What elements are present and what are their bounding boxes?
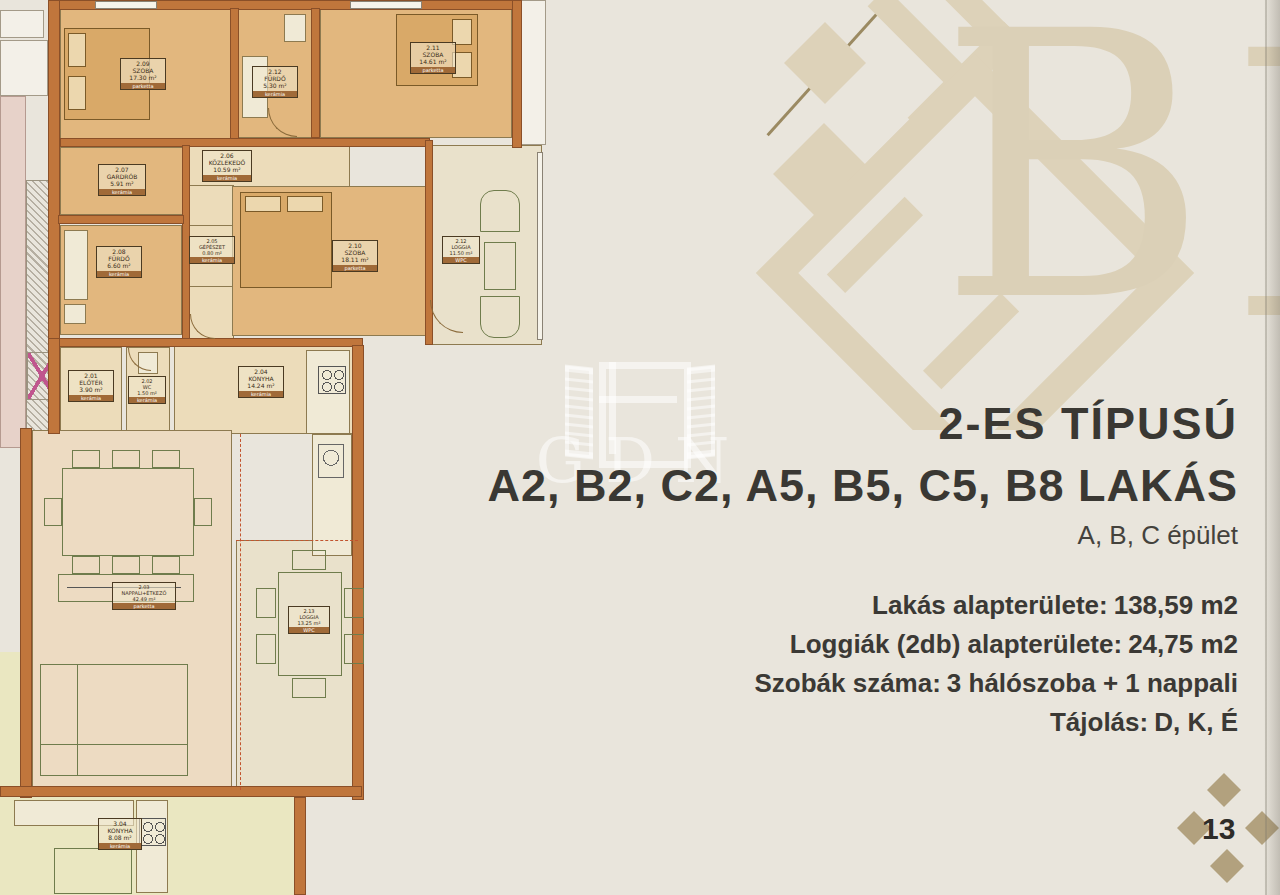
room-name: KONYHA: [101, 827, 139, 834]
chair-icon: [292, 550, 326, 570]
detail-label: Szobák száma:: [754, 668, 940, 698]
room-label-szoba-1: 2.09SZOBA17.30 m²parketta: [120, 58, 166, 90]
loggia-table-icon: [484, 242, 516, 290]
chair-icon: [112, 556, 140, 574]
wall-segment: [352, 345, 364, 800]
pillow-icon: [245, 196, 281, 212]
detail-value: 3 hálószoba + 1 nappali: [947, 668, 1238, 698]
neighbor-room: [0, 40, 48, 96]
room-floor: parketta: [113, 603, 175, 609]
wall-segment: [311, 8, 320, 138]
wall-segment: [58, 215, 184, 224]
bathtub-icon: [64, 230, 88, 300]
room-name: ELŐTÉR: [71, 379, 111, 386]
neighbor-strip: [0, 96, 26, 448]
detail-value: D, K, É: [1154, 707, 1238, 737]
sink-icon: [284, 14, 306, 42]
chair-icon: [344, 588, 364, 618]
pillow-icon: [287, 196, 323, 212]
stove-icon: [139, 818, 166, 846]
room-label-gardrob: 2.07GARDRÓB5.91 m²kerámia: [98, 164, 146, 196]
room-floor: kerámia: [129, 397, 165, 403]
room-floor: kerámia: [203, 175, 251, 181]
room-area: 42.49 m²: [115, 596, 173, 602]
room-name: KONYHA: [241, 375, 281, 382]
room-label-loggia-right: 2.12LOGGIA11.50 m²WPC: [442, 236, 480, 264]
chair-icon: [152, 450, 180, 468]
dining-table-icon: [62, 468, 194, 556]
room-floor: kerámia: [239, 391, 283, 397]
sofa-cushion-line: [41, 744, 187, 745]
floor-plan: 2.09SZOBA17.30 m²parketta 2.12FÜRDŐ5.30 …: [0, 0, 560, 895]
chair-icon: [256, 588, 276, 618]
room-area: 14.24 m²: [241, 382, 281, 389]
room-name: SZOBA: [123, 67, 163, 74]
brochure-page: B B GDN 2-ES TÍPUSÚ A2, B2, C2, A5, B5, …: [0, 0, 1280, 895]
room-floor: kerámia: [99, 843, 141, 849]
pillow-icon: [68, 33, 86, 67]
chair-icon: [292, 678, 326, 698]
chair-icon: [256, 634, 276, 664]
room-floor: parketta: [333, 265, 377, 271]
wall-segment: [230, 8, 239, 140]
room-number: 2.06: [205, 152, 249, 159]
diamond-icon: [1210, 849, 1244, 883]
room-label-eloter: 2.01ELŐTÉR3.90 m²kerámia: [68, 370, 114, 402]
room-label-neighbor-konyha: 3.04KONYHA8.08 m²kerámia: [98, 818, 142, 850]
wall-segment: [48, 0, 60, 352]
room-area: 14.61 m²: [413, 58, 453, 65]
wall-segment: [48, 338, 363, 347]
room-floor: kerámia: [190, 257, 234, 263]
detail-line-area: Lakás alapterülete:138,59 m2: [754, 586, 1238, 625]
letter-b-watermark: B B: [700, 0, 1280, 430]
pillow-icon: [68, 76, 86, 110]
room-area: 5.91 m²: [101, 180, 143, 187]
room-label-gepeszet: 2.05GÉPÉSZET0.80 m²kerámia: [189, 236, 235, 264]
chair-icon: [72, 450, 100, 468]
room-number: 2.01: [71, 372, 111, 379]
chair-icon: [44, 498, 62, 526]
watermark-letter: B: [938, 6, 1208, 330]
wall-segment: [512, 0, 522, 148]
stove-icon: [318, 366, 346, 394]
room-name: FÜRDŐ: [99, 255, 139, 262]
room-area: 13.25 m²: [291, 620, 327, 626]
room-number: 2.04: [241, 368, 281, 375]
room-area: 10.59 m²: [205, 166, 249, 173]
wall-segment: [48, 338, 60, 434]
room-label-szoba-2: 2.11SZOBA14.61 m²parketta: [410, 42, 456, 74]
room-area: 3.90 m²: [71, 386, 111, 393]
apartment-details: Lakás alapterülete:138,59 m2 Loggiák (2d…: [754, 586, 1238, 742]
room-area: 6.60 m²: [99, 262, 139, 269]
room-label-konyha: 2.04KONYHA14.24 m²kerámia: [238, 366, 284, 398]
room-number: 2.08: [99, 248, 139, 255]
room-area: 1.50 m²: [131, 390, 163, 396]
toilet-icon: [64, 304, 86, 324]
room-area: 5.30 m²: [255, 82, 295, 89]
room-area: 18.11 m²: [335, 256, 375, 263]
window-strip: [518, 0, 546, 145]
room-label-kozlekedo: 2.06KÖZLEKEDŐ10.59 m²kerámia: [202, 150, 252, 182]
room-label-wc: 2.02WC1.50 m²kerámia: [128, 376, 166, 404]
room-name: SZOBA: [335, 249, 375, 256]
neighbor-room: [0, 10, 44, 38]
chair-icon: [152, 556, 180, 574]
wall-segment: [60, 138, 430, 147]
section-dash-line: [236, 540, 358, 541]
room-floor: WPC: [289, 627, 329, 633]
room-number: 2.11: [413, 44, 453, 51]
chair-icon: [194, 498, 212, 526]
page-edge-shadow: [1264, 0, 1280, 895]
room-name: SZOBA: [413, 51, 453, 58]
room-floor: parketta: [121, 83, 165, 89]
wall-segment: [425, 140, 433, 345]
room-name: KÖZLEKEDŐ: [205, 159, 249, 166]
detail-label: Tájolás:: [1050, 707, 1148, 737]
chair-icon: [112, 450, 140, 468]
loggia-chair-icon: [480, 190, 520, 232]
wall-segment: [20, 428, 32, 798]
room-floor: kerámia: [253, 91, 297, 97]
room-floor: WPC: [443, 257, 479, 263]
loggia-chair-icon: [480, 296, 520, 338]
room-area: 17.30 m²: [123, 74, 163, 81]
room-label-furdo-top: 2.12FÜRDŐ5.30 m²kerámia: [252, 66, 298, 98]
chair-icon: [72, 556, 100, 574]
room-number: 2.12: [255, 68, 295, 75]
wall-segment: [0, 786, 362, 797]
building-subtitle: A, B, C épület: [487, 520, 1238, 551]
detail-value: 138,59 m2: [1114, 590, 1238, 620]
title-block: 2-ES TÍPUSÚ A2, B2, C2, A5, B5, C5, B8 L…: [487, 398, 1238, 551]
detail-value: 24,75 m2: [1128, 629, 1238, 659]
room-label-loggia-bottom: 2.13LOGGIA13.25 m²WPC: [288, 606, 330, 634]
room-label-furdo-left: 2.08FÜRDŐ6.60 m²kerámia: [96, 246, 142, 278]
apartment-units-title: A2, B2, C2, A5, B5, C5, B8 LAKÁS: [487, 460, 1238, 512]
section-dash-line: [240, 434, 241, 790]
sink-icon: [318, 444, 344, 478]
detail-line-loggia: Loggiák (2db) alapterülete:24,75 m2: [754, 625, 1238, 664]
room-number: 2.09: [123, 60, 163, 67]
window-icon: [537, 152, 543, 340]
detail-label: Lakás alapterülete:: [872, 590, 1108, 620]
room-area: 11.50 m²: [445, 250, 477, 256]
room-number: 3.04: [101, 820, 139, 827]
room-label-nappali: 2.03NAPPALI+ÉTKEZŐ42.49 m²parketta: [112, 582, 176, 610]
room-name: FÜRDŐ: [255, 75, 295, 82]
sofa-cushion-line: [77, 665, 78, 775]
detail-line-rooms: Szobák száma:3 hálószoba + 1 nappali: [754, 664, 1238, 703]
room-area: 0.80 m²: [192, 250, 232, 256]
window-icon: [95, 1, 157, 9]
detail-line-orientation: Tájolás:D, K, É: [754, 703, 1238, 742]
room-area: 8.08 m²: [101, 834, 139, 841]
wall-segment: [294, 797, 306, 895]
room-floor: parketta: [411, 67, 455, 73]
room-floor: kerámia: [99, 189, 145, 195]
diamond-icon: [1207, 773, 1241, 807]
window-icon: [350, 1, 422, 9]
sofa-icon: [40, 664, 188, 776]
room-number: 2.10: [335, 242, 375, 249]
apartment-type-title: 2-ES TÍPUSÚ: [487, 398, 1238, 450]
page-number: 13: [1202, 812, 1235, 846]
neighbor-room: [0, 652, 20, 797]
room-number: 2.07: [101, 166, 143, 173]
table-icon: [54, 848, 132, 894]
detail-label: Loggiák (2db) alapterülete:: [790, 629, 1122, 659]
room-floor: kerámia: [97, 271, 141, 277]
room-floor: kerámia: [69, 395, 113, 401]
chair-icon: [344, 634, 364, 664]
room-name: GARDRÓB: [101, 173, 143, 180]
room-label-szoba-3: 2.10SZOBA18.11 m²parketta: [332, 240, 378, 272]
